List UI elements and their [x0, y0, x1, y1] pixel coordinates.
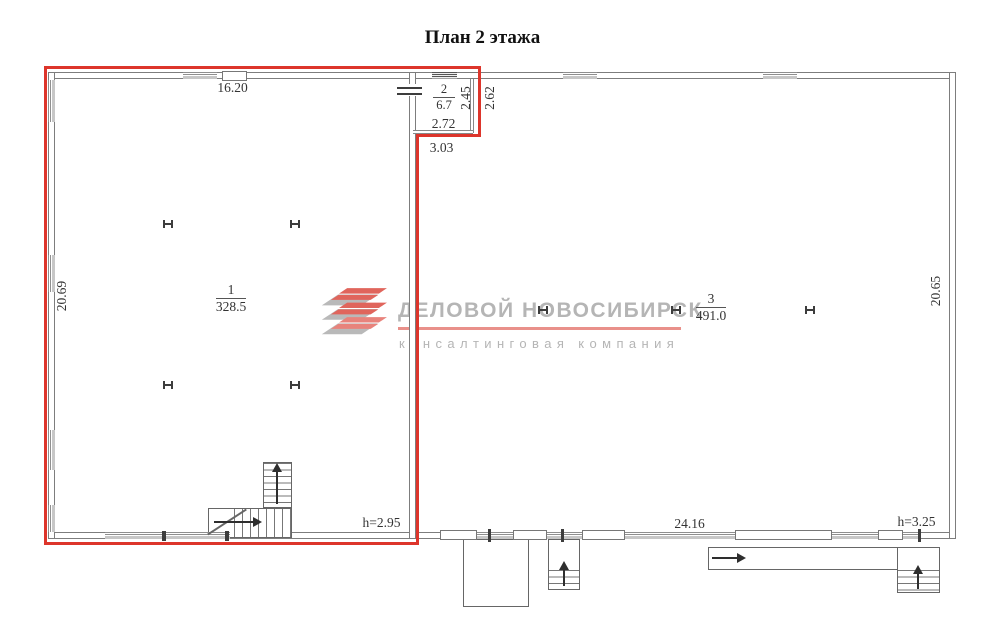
- dimension-bottom-width: 24.16: [662, 516, 717, 532]
- plan-title: План 2 этажа: [360, 27, 605, 49]
- ceiling-height-right: h=3.25: [889, 514, 944, 530]
- stairs-up-arrow: [276, 470, 278, 504]
- ceiling-height-left: h=2.95: [354, 515, 409, 531]
- annex-block: [463, 539, 529, 607]
- window-frame: [735, 530, 832, 540]
- window-strip: [832, 532, 878, 539]
- selection-outline-room2-right: [478, 66, 481, 137]
- window-strip: [563, 72, 597, 79]
- column-marker: [290, 381, 300, 389]
- room-1-label: 1 328.5: [196, 283, 266, 315]
- dimension-room2-width-outer: 3.03: [414, 140, 469, 156]
- staircase-treads: [234, 509, 291, 537]
- column-marker: [290, 220, 300, 228]
- stairs-right-arrow: [214, 521, 254, 523]
- selection-outline-bottom: [44, 542, 419, 545]
- watermark-divider: [398, 327, 681, 330]
- floor-plan: ДЕЛОВОЙ НОВОСИБИРСК консалтинговая компа…: [0, 0, 1000, 640]
- room-2-area: 6.7: [436, 98, 452, 113]
- room-3-area: 491.0: [696, 308, 726, 324]
- dimension-room2-width-inner: 2.72: [416, 116, 471, 132]
- right-wall: [949, 72, 956, 539]
- exterior-stair-south-arrowhead: [559, 561, 569, 570]
- mullion-post: [561, 529, 564, 542]
- watermark-tagline: консалтинговая компания: [399, 336, 679, 351]
- selection-outline-room2-bottom: [416, 134, 481, 137]
- column-marker: [163, 381, 173, 389]
- column-marker: [163, 220, 173, 228]
- selection-outline-middle: [416, 134, 419, 545]
- dimension-left-height: 20.69: [54, 266, 70, 326]
- opening-tick: [397, 93, 422, 95]
- stairs-up-arrowhead: [272, 463, 282, 472]
- column-marker: [538, 306, 548, 314]
- window-strip: [48, 80, 55, 122]
- selection-outline-left: [44, 66, 47, 545]
- dimension-top-width: 16.20: [205, 80, 260, 96]
- company-logo-icon: [320, 286, 396, 350]
- column-marker: [805, 306, 815, 314]
- window-strip: [48, 430, 55, 470]
- mullion-post: [225, 531, 229, 541]
- window-strip: [625, 532, 735, 539]
- exterior-ramp-arrowhead: [737, 553, 746, 563]
- exterior-stair-east-arrow: [917, 572, 919, 589]
- window-strip: [477, 532, 513, 539]
- exterior-stair-south-arrow: [563, 568, 565, 586]
- window-strip: [547, 532, 582, 539]
- opening-tick: [397, 87, 422, 89]
- dimension-room2-height-outer: 2.62: [482, 68, 498, 128]
- mullion-post: [488, 529, 491, 542]
- window-frame: [878, 530, 903, 540]
- window-strip: [432, 72, 457, 79]
- room-1-number: 1: [216, 283, 247, 299]
- mullion-post: [162, 531, 166, 541]
- mullion-post: [918, 529, 921, 542]
- exterior-ramp-arrow: [712, 557, 738, 559]
- exterior-stair-east-arrowhead: [913, 565, 923, 574]
- window-frame: [440, 530, 477, 540]
- dimension-right-height: 20.65: [928, 261, 944, 321]
- window-frame: [582, 530, 625, 540]
- window-strip: [48, 505, 55, 532]
- room-3-number: 3: [696, 292, 727, 308]
- room-3-label: 3 491.0: [676, 292, 746, 324]
- window-strip: [763, 72, 797, 79]
- window-frame: [513, 530, 547, 540]
- wall-opening: [423, 73, 432, 78]
- selection-outline-top: [44, 66, 481, 69]
- stairs-right-arrowhead: [253, 517, 262, 527]
- room-1-area: 328.5: [216, 299, 246, 315]
- window-strip: [183, 72, 217, 79]
- room-2-number: 2: [433, 83, 455, 98]
